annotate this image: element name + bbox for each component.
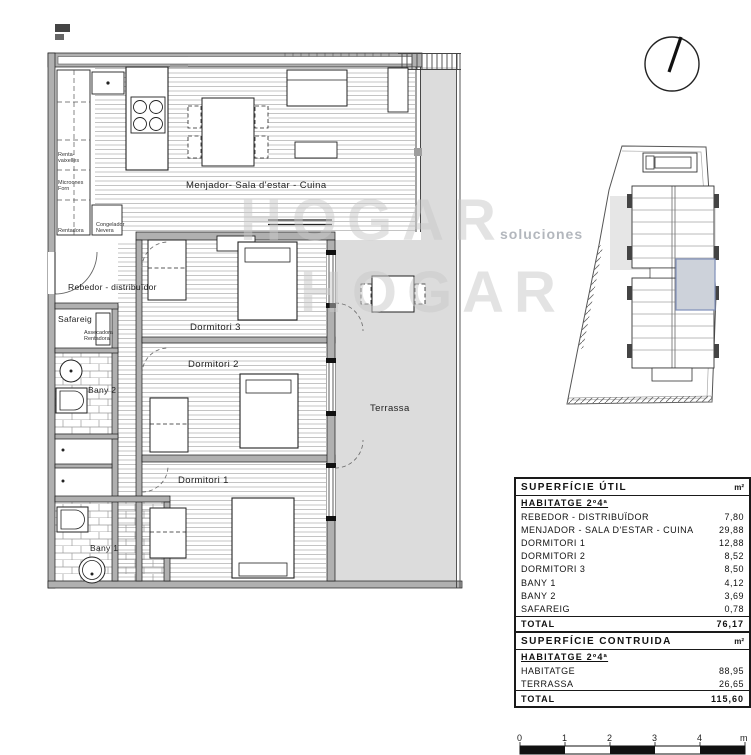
row-value: 8,50 [724, 564, 744, 574]
row-value: 0,78 [724, 604, 744, 614]
label-bany1: Bany 1 [90, 543, 118, 553]
row-value: 8,52 [724, 551, 744, 561]
table-row: DORMITORI 2 8,52 [516, 550, 749, 563]
total-value: 76,17 [716, 619, 744, 629]
contruida-section-header: SUPERFÍCIE CONTRUIDA m² [516, 631, 749, 650]
row-value: 4,12 [724, 578, 744, 588]
row-label: DORMITORI 1 [521, 538, 585, 548]
row-value: 29,88 [719, 525, 744, 535]
drawing-sheet: Menjador- Sala d'estar - Cuina Rebedor -… [0, 0, 751, 755]
site-key-plan [567, 146, 719, 404]
row-value: 3,69 [724, 591, 744, 601]
row-label: BANY 2 [521, 591, 556, 601]
row-label: TERRASSA [521, 679, 574, 689]
table-row: HABITATGE 88,95 [516, 664, 749, 677]
contruida-subtitle-row: HABITATGE 2º4ª [516, 650, 749, 664]
total-value: 115,60 [711, 694, 744, 704]
contruida-unit: m² [734, 637, 744, 646]
label-terrassa: Terrassa [370, 403, 410, 414]
scale-label-3: 3 [652, 733, 657, 743]
row-value: 12,88 [719, 538, 744, 548]
row-label: BANY 1 [521, 578, 556, 588]
row-value: 7,80 [724, 512, 744, 522]
label-nevera: Nevera [96, 228, 115, 234]
total-label: TOTAL [521, 694, 555, 704]
row-label: DORMITORI 3 [521, 564, 585, 574]
areas-table: SUPERFÍCIE ÚTIL m² HABITATGE 2º4ª REBEDO… [514, 477, 751, 708]
scale-label-4: 4 [697, 733, 702, 743]
logo-mark [55, 24, 70, 40]
row-label: DORMITORI 2 [521, 551, 585, 561]
table-row: TERRASSA 26,65 [516, 677, 749, 690]
watermark-word-2: HOGAR [300, 260, 566, 325]
contruida-subtitle: HABITATGE 2º4ª [521, 652, 608, 662]
table-row: BANY 1 4,12 [516, 576, 749, 589]
table-row: DORMITORI 3 8,50 [516, 563, 749, 576]
row-value: 26,65 [719, 679, 744, 689]
scale-bar: 0 1 2 3 4 m [517, 733, 748, 754]
label-assecadora-rentadora: Rentadora [84, 336, 111, 342]
scale-label-m: m [740, 733, 748, 743]
highlighted-unit [676, 259, 715, 310]
scale-label-2: 2 [607, 733, 612, 743]
row-label: MENJADOR - SALA D'ESTAR - CUINA [521, 525, 694, 535]
label-rentadora: Rentadora [58, 228, 85, 234]
row-value: 88,95 [719, 666, 744, 676]
util-subtitle-row: HABITATGE 2º4ª [516, 496, 749, 510]
row-label: SAFAREIG [521, 604, 570, 614]
table-row: REBEDOR - DISTRIBUÏDOR 7,80 [516, 510, 749, 523]
table-row: DORMITORI 1 12,88 [516, 536, 749, 549]
util-unit: m² [734, 483, 744, 492]
label-rebedor: Rebedor - distribuïdor [68, 282, 157, 292]
north-arrow-icon [645, 37, 699, 91]
label-dormitori3: Dormitori 3 [190, 322, 241, 333]
row-label: REBEDOR - DISTRIBUÏDOR [521, 512, 649, 522]
contruida-total-row: TOTAL 115,60 [516, 690, 749, 706]
util-title: SUPERFÍCIE ÚTIL [521, 482, 627, 493]
label-safareig: Safareig [58, 314, 92, 324]
scale-label-1: 1 [562, 733, 567, 743]
util-subtitle: HABITATGE 2º4ª [521, 498, 608, 508]
watermark-word-1: HOGAR [240, 188, 506, 253]
watermark-small-text: soluciones [500, 226, 583, 242]
total-label: TOTAL [521, 619, 555, 629]
table-row: SAFAREIG 0,78 [516, 602, 749, 615]
scale-label-0: 0 [517, 733, 522, 743]
label-rentavaixelles-2: vaixelles [58, 158, 79, 164]
util-section-header: SUPERFÍCIE ÚTIL m² [516, 479, 749, 496]
cooktop [131, 97, 165, 133]
table-row: MENJADOR - SALA D'ESTAR - CUINA 29,88 [516, 523, 749, 536]
contruida-title: SUPERFÍCIE CONTRUIDA [521, 636, 672, 647]
label-bany2: Bany 2 [88, 385, 116, 395]
row-label: HABITATGE [521, 666, 575, 676]
table-row: BANY 2 3,69 [516, 589, 749, 602]
label-dormitori2: Dormitori 2 [188, 359, 239, 370]
util-total-row: TOTAL 76,17 [516, 616, 749, 632]
label-dormitori1: Dormitori 1 [178, 475, 229, 486]
label-forn: Forn [58, 186, 69, 192]
